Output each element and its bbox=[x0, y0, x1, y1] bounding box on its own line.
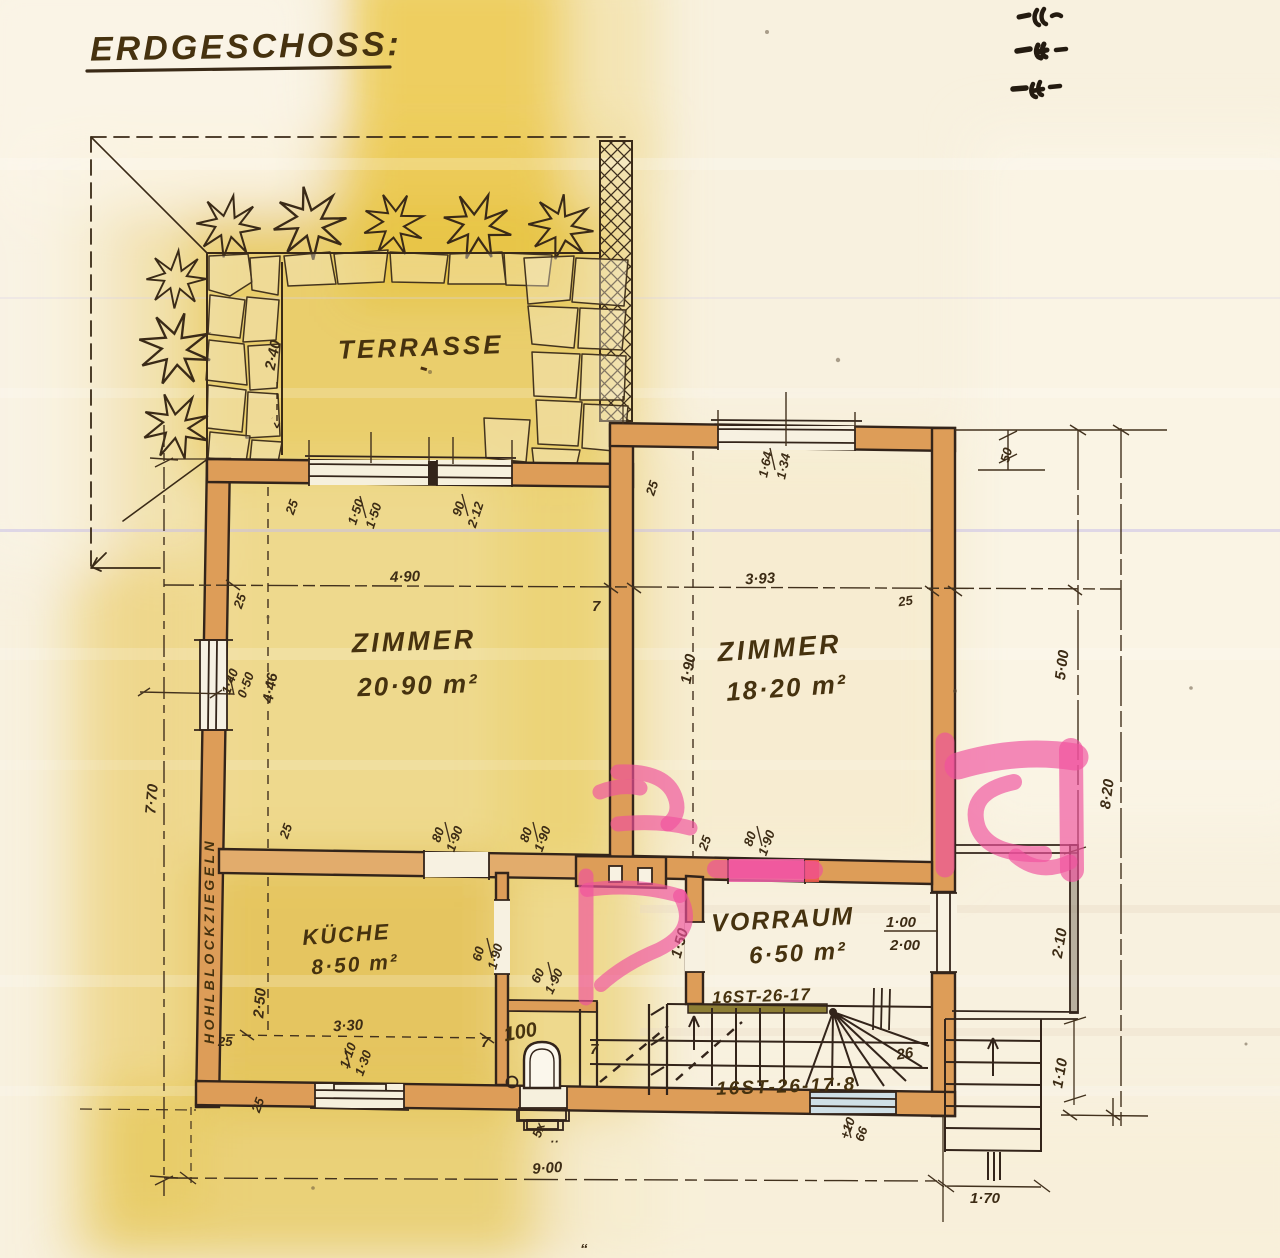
svg-text:26: 26 bbox=[894, 1044, 915, 1063]
svg-text:2·00: 2·00 bbox=[889, 937, 921, 954]
svg-text:6·50 m²: 6·50 m² bbox=[748, 938, 847, 970]
svg-text:25: 25 bbox=[217, 1034, 233, 1049]
svg-text:7: 7 bbox=[481, 1034, 490, 1051]
svg-text:25: 25 bbox=[896, 592, 914, 609]
svg-text:9·00: 9·00 bbox=[532, 1159, 564, 1178]
svg-text:TERRASSE: TERRASSE bbox=[338, 329, 505, 365]
svg-text:2·50: 2·50 bbox=[250, 987, 270, 1020]
svg-text:ZIMMER: ZIMMER bbox=[350, 624, 476, 658]
svg-text:3·30: 3·30 bbox=[333, 1017, 365, 1036]
svg-text:4·90: 4·90 bbox=[389, 568, 421, 586]
svg-text:HOHLBLOCKZIEGELN: HOHLBLOCKZIEGELN bbox=[201, 838, 217, 1044]
svg-text:··: ·· bbox=[550, 1134, 559, 1149]
svg-text:20·90 m²: 20·90 m² bbox=[356, 668, 479, 702]
svg-text:7: 7 bbox=[590, 1041, 599, 1058]
svg-text:7·70: 7·70 bbox=[142, 783, 162, 815]
svg-text:“: “ bbox=[580, 1241, 588, 1258]
svg-text:ERDGESCHOSS:: ERDGESCHOSS: bbox=[90, 25, 402, 68]
svg-text:7: 7 bbox=[592, 598, 601, 615]
svg-text:16ST-26-17: 16ST-26-17 bbox=[712, 985, 812, 1007]
svg-text:1·70: 1·70 bbox=[970, 1190, 1001, 1207]
svg-text:1·00: 1·00 bbox=[886, 914, 917, 931]
svg-text:3·93: 3·93 bbox=[745, 570, 777, 589]
